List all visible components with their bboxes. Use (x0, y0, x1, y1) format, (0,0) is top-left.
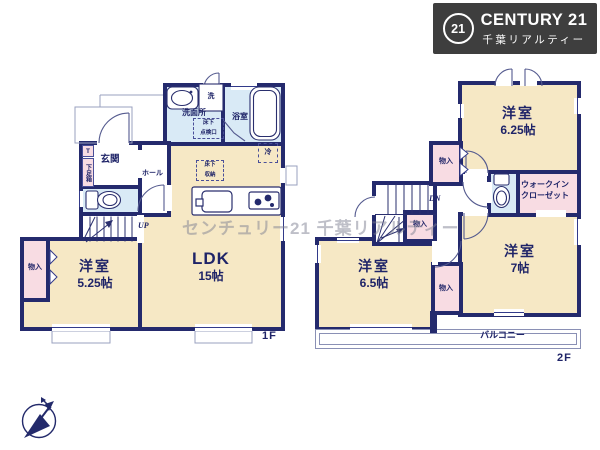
stairs-1f-treads (83, 217, 132, 243)
closet-2f-top-label: 物入 (432, 158, 460, 166)
bedroom-525-label: 洋室 (55, 258, 135, 274)
brand-logo: 21 CENTURY 21 千葉リアルティー (433, 3, 597, 54)
ldk-area: 15帖 (171, 270, 251, 284)
fridge-box: 冷 (258, 143, 278, 163)
closet-2f-bottom-label: 物入 (432, 285, 460, 293)
watermark-text: センチュリー21 千葉リアルティー (182, 214, 459, 239)
wic-label-line1: ウォークイン (521, 180, 569, 189)
company-name: 千葉リアルティー (482, 32, 585, 47)
underfloor-storage-line2: 収納 (197, 171, 223, 180)
closet-1f-label: 物入 (21, 264, 49, 272)
bedroom-7-area: 7帖 (480, 262, 560, 276)
kitchen-sink-icon (202, 191, 232, 212)
kitchen-faucet-icon (196, 199, 203, 206)
inspection-hatch-box: 床下 点検口 (193, 118, 224, 139)
shoe-box: 下足箱 (82, 158, 94, 187)
washbasin-icon (167, 87, 198, 109)
underfloor-storage-box: 床下 収納 (196, 160, 224, 181)
seal-number: 21 (451, 22, 465, 36)
bay-window-outlines-1f (52, 331, 252, 343)
century21-seal-icon: 21 (443, 13, 474, 44)
fridge-label: 冷 (259, 147, 277, 159)
bedroom-625-label: 洋室 (478, 105, 558, 121)
shoe-box-label: 下足箱 (84, 164, 93, 182)
toilet-icon-2f (494, 174, 510, 208)
shoe-t-box: T (82, 145, 94, 157)
floor1-label: 1F (262, 330, 277, 343)
inspection-hatch-line2: 点検口 (194, 129, 223, 138)
balcony-label: バルコニー (460, 330, 545, 340)
inspection-hatch-line1: 床下 (194, 119, 223, 128)
washroom-label: 洗面所 (169, 108, 219, 117)
bedroom-625-area: 6.25帖 (478, 124, 558, 138)
toilet-icon-1f (86, 191, 121, 209)
wic-label-line2: クローゼット (521, 191, 569, 200)
underfloor-storage-line1: 床下 (197, 161, 223, 170)
stove-icon (249, 192, 279, 209)
laundry-label: 洗 (201, 93, 221, 101)
bedroom-525-area: 5.25帖 (55, 277, 135, 291)
bedroom-7-label: 洋室 (480, 243, 560, 259)
ldk-label: LDK (171, 249, 251, 269)
floor2-label: 2F (557, 352, 572, 365)
bedroom-65-label: 洋室 (334, 258, 414, 274)
brand-name: CENTURY 21 (481, 11, 588, 30)
compass-north-icon (23, 397, 56, 438)
back-door-step (286, 166, 297, 185)
bedroom-65-area: 6.5帖 (334, 277, 414, 291)
hall-label: ホール (130, 170, 175, 178)
shoe-t-label: T (86, 148, 90, 155)
stairs-dn-label: DN (429, 194, 441, 203)
floorplan-canvas: LDK 15帖 洋室 5.25帖 玄関 ホール 洗面所 浴室 洗 物入 UP 1… (0, 0, 600, 450)
kitchen-counter (192, 187, 281, 215)
entrance-porch-lines (75, 95, 163, 143)
stairs-up-label: UP (138, 221, 149, 230)
